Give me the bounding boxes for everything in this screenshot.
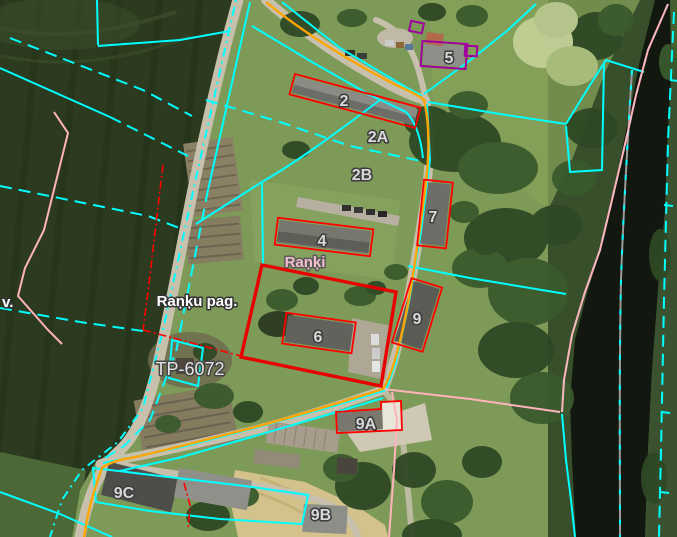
address-label-9a: 9A xyxy=(356,416,377,433)
aerial-map-canvas[interactable]: 2 2A 2B 4 5 6 7 9 9A 9B 9C Raņķi Raņķu p… xyxy=(0,0,677,537)
address-label-9: 9 xyxy=(413,311,422,328)
address-label-2: 2 xyxy=(340,93,349,110)
address-label-2b: 2B xyxy=(352,167,372,184)
address-label-6: 6 xyxy=(314,329,323,346)
address-label-4: 4 xyxy=(318,233,327,250)
partial-place-label: v. xyxy=(2,294,13,311)
map-viewport[interactable]: 2 2A 2B 4 5 6 7 9 9A 9B 9C Raņķi Raņķu p… xyxy=(0,0,677,537)
address-label-7: 7 xyxy=(429,209,438,226)
address-label-2a: 2A xyxy=(368,129,389,146)
plan-code-label: TP-6072 xyxy=(155,359,224,379)
parish-label: Raņķu pag. xyxy=(157,293,238,310)
address-label-9b: 9B xyxy=(311,507,331,524)
settlement-label: Raņķi xyxy=(285,254,326,271)
address-label-5: 5 xyxy=(445,50,454,67)
address-label-9c: 9C xyxy=(114,485,135,502)
